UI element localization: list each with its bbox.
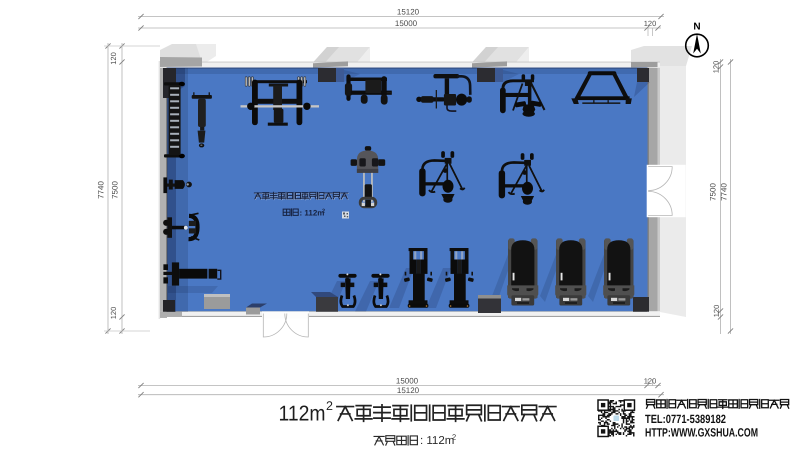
svg-text:120: 120 [644, 19, 657, 28]
svg-text:2: 2 [326, 399, 333, 413]
svg-text:120: 120 [109, 52, 118, 65]
svg-text:15000: 15000 [396, 376, 419, 385]
svg-text:7500: 7500 [111, 181, 120, 199]
svg-text:2: 2 [322, 208, 325, 214]
svg-text:112m: 112m [279, 402, 326, 426]
svg-text:15120: 15120 [397, 386, 420, 395]
svg-text:: 112m: : 112m [420, 435, 454, 447]
svg-text:15000: 15000 [395, 19, 418, 28]
svg-text:: 112m: : 112m [300, 208, 325, 217]
svg-text:HTTP:WWW.GXSHUA.COM: HTTP:WWW.GXSHUA.COM [645, 426, 758, 440]
svg-text:2: 2 [452, 433, 456, 442]
svg-text:7500: 7500 [709, 183, 718, 201]
svg-text:7740: 7740 [97, 181, 106, 199]
svg-text:TEL:0771-5389182: TEL:0771-5389182 [645, 412, 726, 426]
svg-text:120: 120 [712, 61, 721, 74]
svg-text:120: 120 [712, 305, 721, 318]
svg-text:15120: 15120 [397, 8, 420, 17]
svg-text:120: 120 [109, 307, 118, 320]
svg-text:7740: 7740 [720, 183, 729, 201]
svg-text:120: 120 [644, 376, 657, 385]
svg-text:N: N [693, 22, 700, 33]
